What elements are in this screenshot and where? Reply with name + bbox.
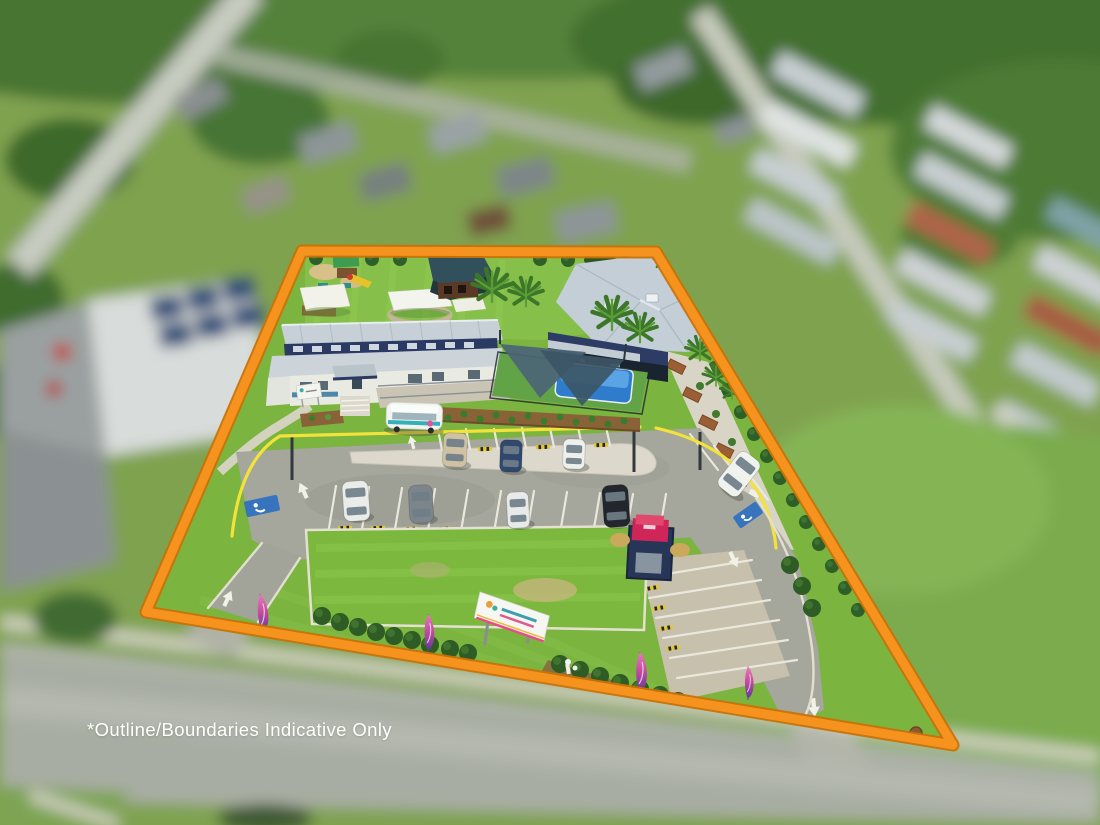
boundary-disclaimer-text: *Outline/Boundaries Indicative Only <box>87 719 392 741</box>
ac-unit <box>646 294 658 302</box>
aerial-photo: *Outline/Boundaries Indicative Only <box>0 0 1100 825</box>
red-car-blob <box>53 343 71 361</box>
childcare-minibus <box>384 402 445 437</box>
red-car-blob <box>46 381 62 397</box>
aerial-photograph <box>0 0 1100 825</box>
gravel-pad <box>610 533 630 547</box>
gravel-pad <box>670 543 690 557</box>
